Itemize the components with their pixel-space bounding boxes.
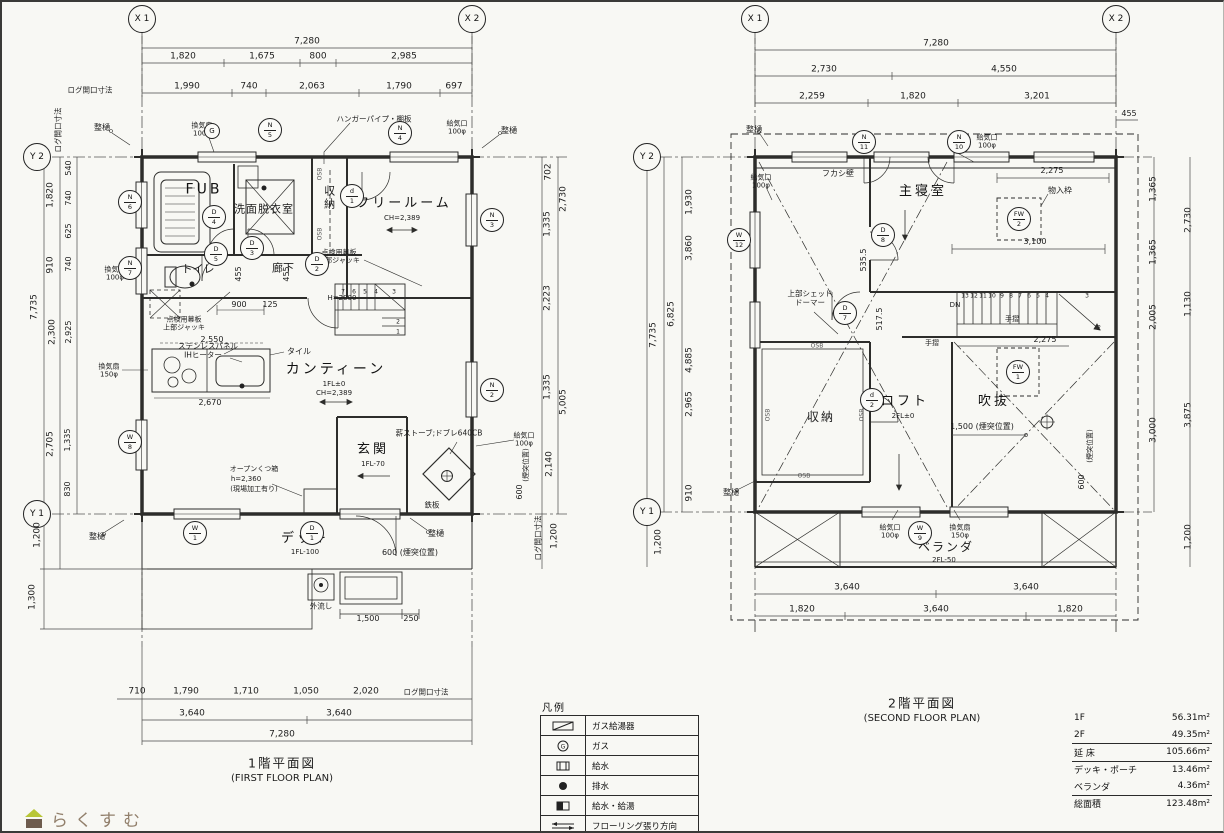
area-row-2f: 2F49.35m² (1072, 727, 1212, 745)
stair-number: 9 (1000, 292, 1004, 299)
fixed-window-mark-fw1: FW1 (1006, 360, 1030, 384)
dim-label: 2,275 (1034, 335, 1057, 345)
log-opening-label: ログ開口寸法 (68, 86, 113, 95)
window-mark-w8: W8 (118, 430, 142, 454)
osb-label: OSB (798, 472, 811, 479)
dim-label: 3,640 (834, 583, 860, 594)
room-label-bedroom: 主寝室 (899, 184, 947, 200)
dim-label: 1,335 (543, 374, 554, 400)
dim-label: 625 (64, 223, 74, 238)
shoe-box-label: オープンくつ箱 (230, 465, 279, 473)
rakusumu-logo: らくすむ (24, 806, 147, 831)
stair-number: 3 (1085, 292, 1089, 299)
dim-label: 697 (445, 82, 462, 93)
window-mark-w1: W1 (183, 521, 207, 545)
dim-label: 910 (685, 484, 696, 501)
storage-frame-label: 物入枠 (1048, 186, 1072, 196)
room-label-freeroom: フリールーム (356, 196, 452, 212)
dim-label: 2,020 (353, 687, 379, 698)
shed-dormer-label: 上部シェッドドーマー (788, 289, 833, 307)
osb-label: OSB (811, 342, 824, 349)
room-label-loft: ロフト (881, 394, 929, 410)
dim-label: 1,675 (249, 52, 275, 63)
gutter-label: 整樋 (428, 529, 444, 539)
plan1-subtitle: (FIRST FLOOR PLAN) (231, 773, 333, 785)
area-table: 1F56.31m² 2F49.35m² 延 床105.66m² デッキ・ポーチ1… (1072, 710, 1212, 812)
stair-number: 5 (363, 288, 367, 295)
dim-label: 455 (282, 266, 292, 281)
room-label-closet: 収納 (807, 410, 835, 424)
legend-row: G ガス (541, 735, 698, 755)
room-label-canteen: カンティーン (286, 362, 386, 379)
door-mark-d2-small: d2 (860, 388, 884, 412)
dim-label: 740 (240, 82, 257, 93)
window-mark-n2: N2 (480, 378, 504, 402)
grid-mark-x2: X 2 (458, 5, 486, 33)
shoe-box-label: h=2,360 (231, 475, 261, 483)
fukashi-wall-label: フカシ壁 (822, 169, 854, 179)
dim-label: 2,730 (559, 186, 570, 212)
air-inlet-label: 給気口100φ (751, 174, 772, 191)
dim-label: 2,005 (1149, 304, 1160, 330)
dim-label: 1,365 (1149, 239, 1160, 265)
window-mark-n5: N5 (258, 118, 282, 142)
dim-label: 1,050 (293, 687, 319, 698)
dim-label: 1,710 (233, 687, 259, 698)
air-inlet-label: 給気口100φ (514, 432, 535, 449)
dim-label: 535.5 (859, 249, 869, 272)
fixed-window-mark-fw2: FW2 (1007, 207, 1031, 231)
room-note: CH=2,389 (316, 389, 352, 397)
dim-label: 710 (128, 687, 145, 698)
door-mark-d7: D7 (833, 301, 857, 325)
drain-icon (541, 776, 586, 795)
osb-label: OSB (316, 228, 323, 241)
dim-label: 4,550 (991, 65, 1017, 76)
dim-label: 740 (64, 256, 74, 271)
log-opening-label: ログ開口寸法 (534, 516, 543, 561)
dim-label: 125 (262, 300, 277, 310)
stair-number: 1 (396, 328, 400, 335)
chimney-position-label: (煙突位置) (1086, 429, 1094, 462)
logo-text: らくすむ (51, 806, 147, 831)
osb-label: OSB (316, 168, 323, 181)
dim-label: 600 (515, 484, 525, 499)
door-mark-d2: D2 (305, 252, 329, 276)
dim-label: 540 (64, 160, 74, 175)
osb-label: OSB (858, 409, 865, 422)
room-label-washroom: 洗面脱衣室 (234, 202, 294, 215)
stair-number: 7 (1018, 292, 1022, 299)
dim-label: 900 (231, 300, 246, 310)
area-row-total-floor: 延 床105.66m² (1072, 744, 1212, 762)
room-label-entrance: 玄関 (357, 442, 389, 458)
plan2-subtitle: (SECOND FLOOR PLAN) (864, 713, 981, 725)
osb-label: OSB (764, 409, 771, 422)
legend-row: ガス給湯器 (541, 716, 698, 735)
dim-label: 1,930 (685, 189, 696, 215)
stair-number: 13 (961, 292, 969, 299)
gutter-label: 整樋 (94, 123, 110, 133)
vent-fan-label: 換気扇150φ (99, 363, 120, 380)
legend-row: 給水・給湯 (541, 795, 698, 815)
window-mark-n10: N10 (947, 130, 971, 154)
grid-mark-y1: Y 1 (633, 498, 661, 526)
dim-label: 600 (1077, 474, 1087, 489)
dim-label: 3,640 (326, 709, 352, 720)
dim-label: 1,820 (1057, 605, 1083, 616)
dim-label: 1,790 (386, 82, 412, 93)
chimney-position-label: 1,500 (煙突位置) (950, 422, 1014, 432)
door-mark-d4: D4 (202, 205, 226, 229)
dim-label: 1,365 (1149, 176, 1160, 202)
dim-label: 1,200 (1184, 524, 1195, 550)
dim-label: 1,820 (170, 52, 196, 63)
dim-label: 1,500 (357, 614, 380, 624)
flooring-direction-icon (541, 816, 586, 833)
plan2-title: 2階平面図 (888, 696, 956, 711)
grid-mark-x1: X 1 (741, 5, 769, 33)
legend-row: 排水 (541, 775, 698, 795)
dim-label: 2,063 (299, 82, 325, 93)
dim-label: 3,640 (1013, 583, 1039, 594)
grid-mark-x1: X 1 (128, 5, 156, 33)
window-mark-n11: N11 (852, 130, 876, 154)
gas-point-mark: G (204, 123, 220, 139)
gutter-label: 整樋 (89, 532, 105, 542)
dim-label: 7,735 (30, 294, 41, 320)
room-note: CH=2,389 (384, 214, 420, 222)
dim-label: 2,985 (391, 52, 417, 63)
window-mark-w12: W12 (727, 228, 751, 252)
house-icon (24, 809, 44, 829)
dim-label: 1,130 (1184, 291, 1195, 317)
svg-text:G: G (561, 743, 566, 750)
dim-label: 517.5 (875, 308, 885, 331)
room-label-void: 吹抜 (978, 394, 1010, 410)
dim-label: 3,640 (923, 605, 949, 616)
dim-label: 2,705 (46, 431, 57, 457)
stair-number: 10 (988, 292, 996, 299)
dim-label: 7,735 (649, 322, 660, 348)
dim-label: 1,200 (654, 529, 665, 555)
legend-title: 凡例 (542, 699, 566, 714)
legend-row: 給水 (541, 755, 698, 775)
air-inlet-label: 給気口100φ (880, 524, 901, 541)
down-label: DN (950, 301, 961, 309)
door-mark-d8: D8 (871, 223, 895, 247)
dim-label: 2,550 (201, 335, 224, 345)
stair-number: 4 (1045, 292, 1049, 299)
dim-label: 2,730 (811, 65, 837, 76)
room-label-closet: 収納 (322, 185, 335, 211)
grid-mark-y2: Y 2 (633, 143, 661, 171)
dim-label: 2,259 (799, 92, 825, 103)
dim-label: 1,820 (46, 182, 57, 208)
stair-number: 5 (1036, 292, 1040, 299)
room-note: 1FL-70 (361, 460, 385, 468)
grid-mark-y2: Y 2 (23, 143, 51, 171)
tile-label: タイル (287, 347, 311, 357)
door-mark-d3: D3 (240, 236, 264, 260)
window-mark-n7: N7 (118, 256, 142, 280)
log-opening-label: ログ開口寸法 (54, 108, 63, 153)
dim-label: 3,640 (179, 709, 205, 720)
room-label-fub: FUB (186, 182, 223, 199)
stair-number: 2 (1097, 324, 1101, 331)
air-inlet-label: 給気口100φ (447, 120, 468, 137)
stair-number: 12 (970, 292, 978, 299)
water-supply-icon (541, 756, 586, 775)
shoe-box-label: (現場加工有り) (230, 485, 277, 493)
window-mark-n4: N4 (388, 121, 412, 145)
dim-label: 250 (403, 614, 418, 624)
room-note: 2FL±0 (892, 412, 915, 420)
dim-label: 1,820 (900, 92, 926, 103)
air-inlet-label: 給気口100φ (977, 134, 998, 151)
gutter-label: 整樋 (501, 126, 517, 136)
door-mark-d1-small: d1 (340, 184, 364, 208)
dim-label: 1,820 (789, 605, 815, 616)
dim-label: 1,200 (33, 522, 44, 548)
room-note: 1FL-100 (291, 548, 319, 556)
door-mark-d5: D5 (204, 242, 228, 266)
outdoor-sink-label: 外流し (310, 602, 333, 611)
dim-label: 2,670 (199, 398, 222, 408)
dim-label: 1,990 (174, 82, 200, 93)
dim-label: 1,200 (550, 523, 561, 549)
drawing-sheet: X 1 X 2 Y 2 Y 1 7,280 1,820 1,675 800 2,… (0, 0, 1224, 833)
log-opening-label: ログ開口寸法 (404, 688, 449, 697)
stair-number: 3 (392, 288, 396, 295)
area-row-deck-porch: デッキ・ポーチ13.46m² (1072, 762, 1212, 779)
window-mark-w9: W9 (908, 521, 932, 545)
dim-label: 2,925 (64, 321, 74, 344)
inspection-board-label: 点検用幕板上部ジャッキ (163, 316, 205, 333)
area-row-1f: 1F56.31m² (1072, 710, 1212, 727)
dim-label: 702 (544, 163, 555, 180)
dim-label: 2,223 (543, 285, 554, 311)
stair-number: 2 (396, 318, 400, 325)
iron-plate-label: 鉄板 (425, 501, 440, 510)
gas-water-heater-icon (541, 716, 586, 735)
ih-heater-label: IHヒーター (184, 351, 222, 360)
dim-label: 455 (1121, 109, 1136, 119)
window-mark-n6: N6 (118, 190, 142, 214)
grid-mark-x2: X 2 (1102, 5, 1130, 33)
dim-label: 2,275 (1041, 166, 1064, 176)
dim-label: 1,300 (28, 584, 39, 610)
vent-fan-label: 換気扇150φ (950, 524, 971, 541)
dim-label: 7,280 (269, 730, 295, 741)
door-mark-d1: D1 (300, 521, 324, 545)
stair-number: 6 (352, 288, 356, 295)
dim-label: 740 (64, 190, 74, 205)
dim-label: 2,140 (545, 451, 556, 477)
dim-label: 2,730 (1184, 207, 1195, 233)
chimney-position-label: 600 (煙突位置) (382, 548, 438, 558)
legend-row: フローリング張り方向 (541, 815, 698, 833)
dim-label: 800 (309, 52, 326, 63)
handrail-label: 手摺 (925, 339, 939, 347)
dim-label: 5,005 (559, 389, 570, 415)
dim-label: 4,885 (685, 347, 696, 373)
stair-number: 8 (1009, 292, 1013, 299)
dim-label: 3,000 (1149, 417, 1160, 443)
area-row-veranda: ベランダ4.36m² (1072, 778, 1212, 796)
dim-label: 3,100 (1024, 237, 1047, 247)
room-note: 2FL-50 (932, 556, 956, 564)
dim-label: 1,335 (63, 429, 73, 452)
gutter-label: 整樋 (723, 488, 739, 498)
area-row-grand-total: 総面積123.48m² (1072, 796, 1212, 813)
dim-label: 910 (46, 256, 57, 273)
room-note: 1FL±0 (323, 380, 346, 388)
gas-icon: G (541, 736, 586, 755)
dim-label: 1,335 (543, 211, 554, 237)
wood-stove-label: 薪ストーブ;ドブレ640CB (396, 429, 483, 438)
dim-label: 2,965 (685, 391, 696, 417)
dim-label: 2,300 (48, 319, 59, 345)
handrail-label: 手摺 (1005, 315, 1019, 323)
window-mark-n3: N3 (480, 208, 504, 232)
water-hot-supply-icon (541, 796, 586, 815)
dim-label: 7,280 (923, 39, 949, 50)
dim-label: 3,201 (1024, 92, 1050, 103)
dim-label: 3,860 (685, 235, 696, 261)
stair-number: 6 (1027, 292, 1031, 299)
stair-number: 4 (374, 288, 378, 295)
dim-label: 6,825 (667, 301, 678, 327)
dim-label: 830 (63, 481, 73, 496)
dim-label: 1,790 (173, 687, 199, 698)
stair-number: 7 (341, 288, 345, 295)
legend-table: ガス給湯器 G ガス 給水 排水 給水・給湯 フローリング張り方向 (540, 715, 699, 833)
stair-number: 11 (979, 292, 987, 299)
plan1-title: 1階平面図 (248, 756, 316, 771)
dim-label: 455 (234, 266, 244, 281)
chimney-position-label: (煙突位置) (522, 448, 530, 481)
dim-label: 3,875 (1184, 402, 1195, 428)
dim-label: 7,280 (294, 37, 320, 48)
gutter-label: 整樋 (746, 125, 762, 135)
